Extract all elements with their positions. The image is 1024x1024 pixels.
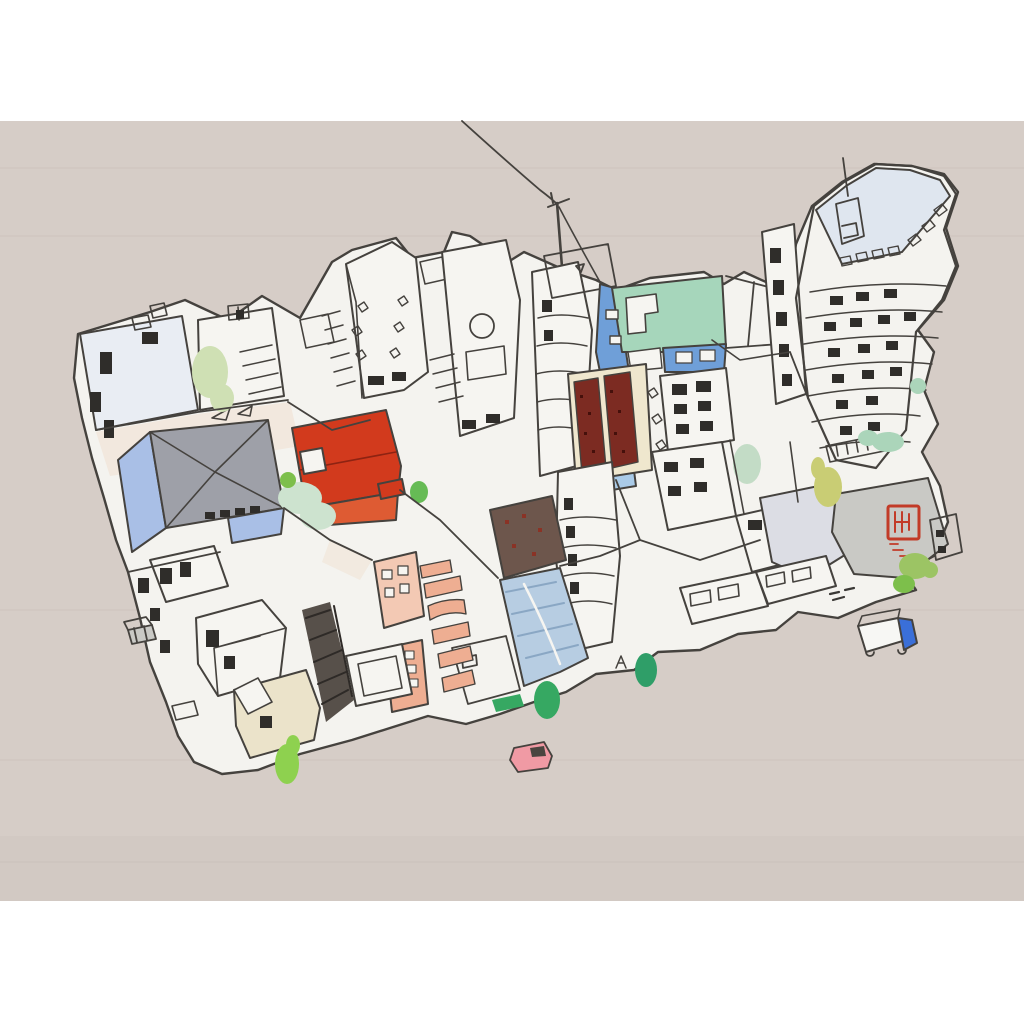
roof-square: [346, 644, 412, 706]
blue-wall-under-teal: [663, 344, 726, 372]
tree-tiny-mint: [910, 378, 926, 394]
tree-mid-green-c: [922, 562, 938, 578]
pale-roof-plate: [80, 316, 198, 430]
top-margin: [0, 0, 1024, 121]
ground-lower-shade: [0, 836, 1024, 901]
roof-chimney-box: [300, 448, 326, 474]
mid-block-outline: [660, 368, 734, 452]
bottom-margin: [0, 901, 1024, 1024]
scanned-artwork: [0, 0, 1024, 1024]
tree-bright-b: [286, 735, 300, 755]
tree-mint-pair-b: [300, 502, 336, 530]
tree-olive-thumb: [811, 457, 825, 479]
tree-top-green: [280, 472, 296, 488]
tree-emerald-1: [534, 681, 560, 719]
painting-aerial-city: [0, 0, 1024, 1024]
house-cream-window: [260, 716, 272, 728]
tree-mint-cluster-b: [858, 430, 878, 446]
tree-mid-green-b: [893, 575, 915, 593]
tree-emerald-2: [635, 653, 657, 687]
salmon-grid-upper: [374, 552, 424, 628]
